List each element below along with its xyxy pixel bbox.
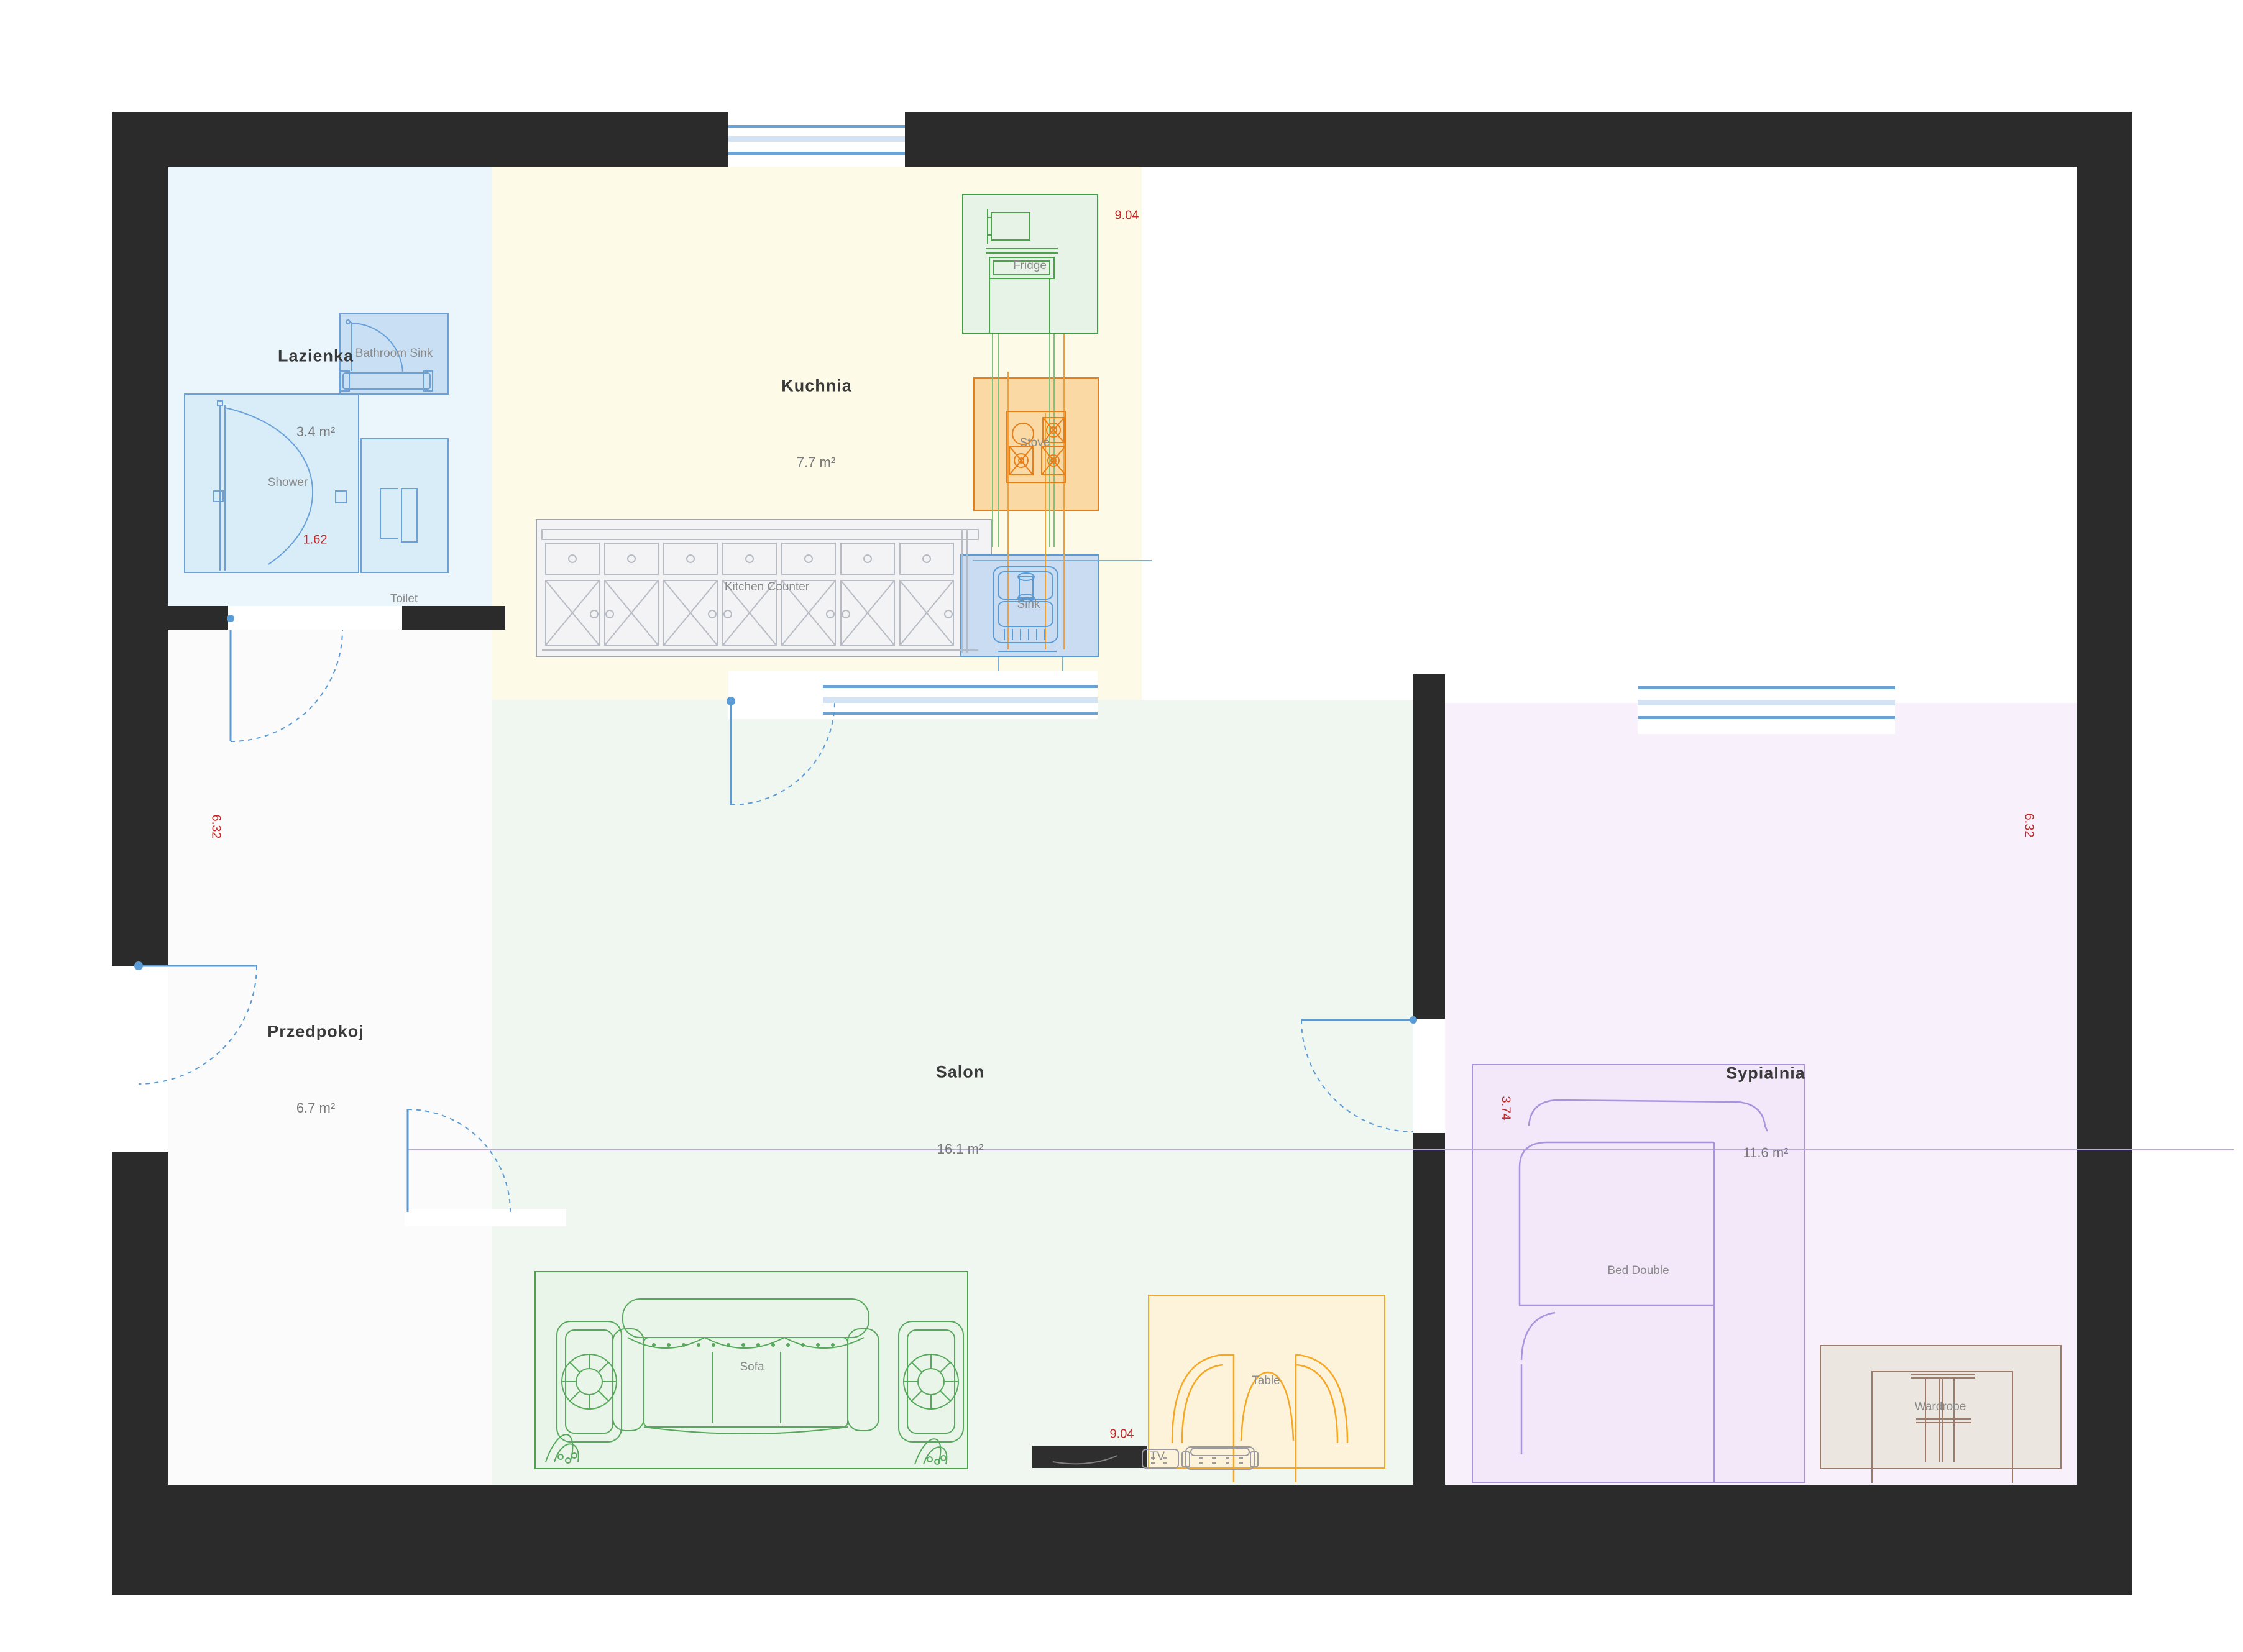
furniture-label-bathroom-sink: Bathroom Sink [355, 347, 433, 360]
furniture-label-stove: Stove [1020, 436, 1050, 450]
entry-door [134, 961, 257, 1084]
tv-screen-curve [1053, 1456, 1117, 1464]
furniture-label-wardrobe: Wardrobe [1915, 1400, 1966, 1414]
furniture-label-sofa: Sofa [740, 1361, 764, 1374]
room-label-lazienka: Lazienka [278, 347, 354, 366]
floor-plan: Lazienka Kuchnia Przedpokoj Salon Sypial… [0, 0, 2243, 1652]
furniture-label-tv: TV [1150, 1450, 1165, 1464]
area-label-sypialnia: 11.6 m² [1743, 1145, 1789, 1161]
wardrobe-drawing [1872, 1372, 2012, 1483]
furniture-label-toilet: Toilet [390, 592, 418, 606]
dim-label-bottom-width: 9.04 [1110, 1428, 1134, 1442]
area-label-salon: 16.1 m² [937, 1141, 984, 1157]
leader-lines [407, 334, 2234, 1150]
furniture-label-kitchen-counter: Kitchen Counter [725, 580, 809, 594]
furniture-label-sink: Sink [1017, 598, 1040, 612]
dim-label-shower-width: 1.62 [303, 533, 328, 548]
kitchen-door [727, 697, 835, 805]
room-label-salon: Salon [936, 1063, 985, 1082]
dim-label-left-height: 6.32 [209, 815, 223, 839]
salon-sypialnia-door [1301, 1016, 1417, 1132]
bed-drawing [1520, 1100, 1768, 1483]
room-label-kuchnia: Kuchnia [781, 377, 852, 396]
toilet-drawing [380, 489, 417, 542]
plan-drawing-layer [0, 0, 2243, 1652]
dim-label-kitchen-width: 9.04 [1115, 209, 1139, 223]
furniture-label-bed: Bed Double [1607, 1264, 1669, 1278]
room-label-sypialnia: Sypialnia [1726, 1064, 1805, 1083]
dim-label-right-height: 6.32 [2022, 814, 2036, 838]
room-label-przedpokoj: Przedpokoj [267, 1022, 364, 1042]
sofa-drawing [546, 1299, 963, 1464]
area-label-lazienka: 3.4 m² [296, 424, 335, 440]
dim-label-bedroom-width: 3.74 [1498, 1096, 1513, 1121]
furniture-label-shower: Shower [268, 476, 308, 490]
area-label-przedpokoj: 6.7 m² [296, 1100, 335, 1116]
bathroom-door [227, 615, 342, 741]
area-label-kuchnia: 7.7 m² [797, 454, 835, 470]
furniture-label-fridge: Fridge [1013, 259, 1047, 273]
furniture-label-table: Table [1252, 1374, 1280, 1388]
przedpokoj-salon-door [408, 1109, 510, 1212]
